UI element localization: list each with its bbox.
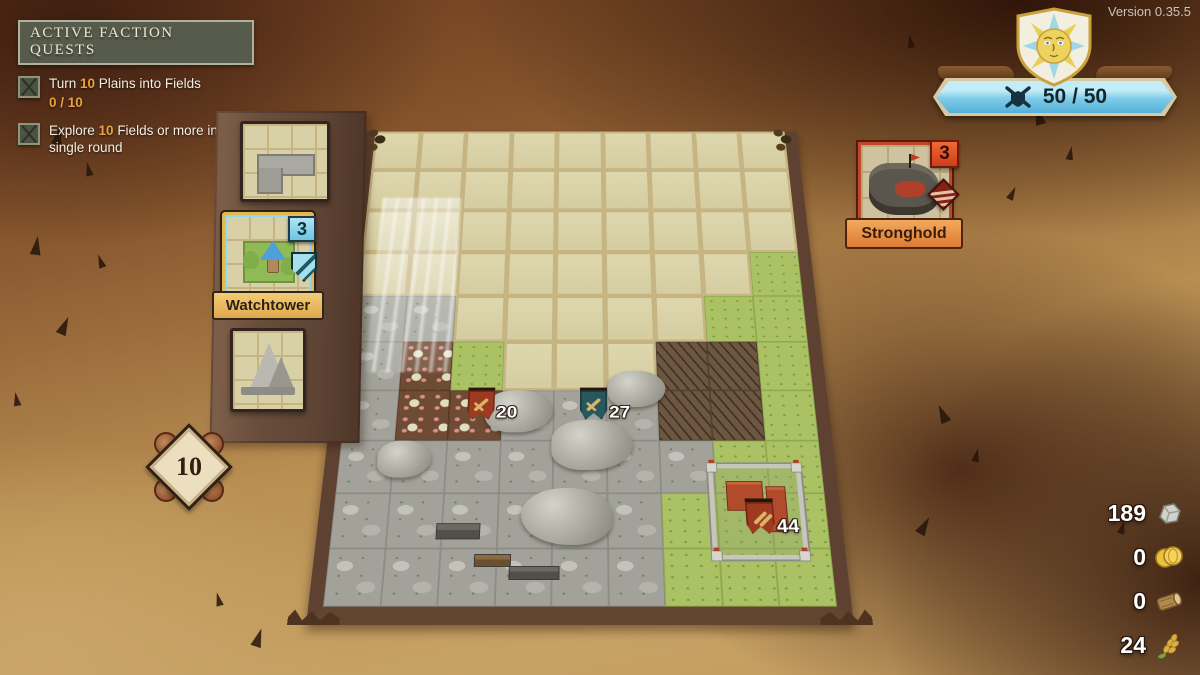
quest-progress: 0 / 10	[49, 95, 201, 112]
board-tile-unexplored-plain[interactable]	[555, 252, 604, 296]
quest-checkbox-icon	[18, 123, 40, 145]
board-tile-unexplored-plain[interactable]	[603, 170, 651, 210]
board-tile-grass[interactable]	[761, 390, 818, 440]
coins-icon	[1153, 542, 1184, 573]
mountain-base	[241, 387, 295, 395]
board-tile-rock[interactable]	[499, 440, 554, 493]
board-tile-unexplored-plain[interactable]	[605, 296, 656, 342]
stronghold-label: Stronghold	[845, 218, 963, 249]
watchtower-roof	[260, 241, 286, 260]
board-tile-unexplored-plain[interactable]	[414, 170, 464, 210]
crossed-swords-shield-icon	[1003, 85, 1033, 109]
stronghold-art	[869, 163, 939, 215]
board-tile-grass[interactable]	[757, 342, 813, 390]
board-tile-grass[interactable]	[713, 440, 771, 493]
board-tile-unexplored-plain[interactable]	[357, 252, 410, 296]
board-tile-castle-grass[interactable]	[719, 548, 780, 606]
board-tile-rock[interactable]	[496, 493, 552, 548]
board-tile-unexplored-plain[interactable]	[554, 342, 606, 390]
board-tile-unexplored-plain[interactable]	[746, 210, 798, 252]
board-tile-unexplored-plain[interactable]	[604, 210, 653, 252]
board-tile-unexplored-plain[interactable]	[504, 296, 555, 342]
board-tile-unexplored-plain[interactable]	[411, 210, 462, 252]
board-tile-rock[interactable]	[607, 493, 663, 548]
resource-list: 189 0 0 24	[1108, 498, 1184, 661]
board-tile-rock[interactable]	[551, 548, 608, 606]
wood-icon	[1153, 586, 1184, 617]
board-tile-rock[interactable]	[336, 440, 395, 493]
board-tile-mushroom-dirt[interactable]	[399, 342, 454, 390]
board-tile-village-rock[interactable]	[380, 548, 441, 606]
board-tile-badlands[interactable]	[658, 390, 713, 440]
board-tile-unexplored-plain[interactable]	[502, 342, 554, 390]
board-tile-unexplored-plain[interactable]	[653, 252, 704, 296]
board-tile-grass[interactable]	[451, 342, 505, 390]
wheat-value: 24	[1120, 632, 1146, 659]
tree-decoration	[1005, 185, 1019, 202]
board-tile-unexplored-plain[interactable]	[555, 296, 606, 342]
round-counter: 10	[146, 424, 232, 510]
quest-text-part: Turn	[49, 76, 80, 91]
teal-army-flag-banner	[580, 388, 607, 420]
stronghold-army-flag-strength: 44	[776, 516, 800, 538]
board-tile-rock[interactable]	[494, 548, 552, 606]
stronghold-army-flag-banner	[744, 498, 775, 534]
frame-carving	[287, 609, 341, 625]
board-tile-unexplored-plain[interactable]	[367, 170, 418, 210]
resource-row-coins: 0	[1133, 542, 1184, 573]
tree-decoration	[29, 235, 45, 256]
board-tile-unexplored-plain[interactable]	[654, 296, 706, 342]
board-tile-unexplored-plain[interactable]	[506, 252, 556, 296]
quest-panel-title: ACTIVE FACTION QUESTS	[18, 20, 254, 65]
board-tile-rock[interactable]	[329, 493, 389, 548]
tree-decoration	[94, 253, 107, 269]
round-counter-value: 10	[176, 452, 202, 482]
stronghold-flag	[911, 154, 920, 161]
rail-leaves-decoration	[772, 129, 795, 155]
board-tile-grass[interactable]	[766, 440, 825, 493]
wood-value: 0	[1133, 588, 1146, 615]
board-tile-unexplored-plain[interactable]	[462, 170, 511, 210]
board-tile-rock[interactable]	[660, 440, 716, 493]
board-tile-unexplored-plain[interactable]	[603, 132, 650, 171]
coins-value: 0	[1133, 544, 1146, 571]
board-tile-grass[interactable]	[661, 493, 719, 548]
board-tile-unexplored-plain[interactable]	[701, 252, 753, 296]
resource-row-stone: 189	[1108, 498, 1184, 529]
red-army-flag-strength: 20	[496, 404, 518, 423]
red-army-flag-banner	[467, 388, 496, 420]
stone-icon	[1153, 498, 1184, 529]
tree-decoration	[83, 161, 95, 177]
tree-decoration	[249, 626, 267, 648]
board-tile-rock[interactable]	[552, 493, 608, 548]
board-tile-unexplored-plain[interactable]	[604, 252, 654, 296]
rock-ridge-shape	[257, 168, 283, 194]
version-label: Version 0.35.5	[1108, 4, 1191, 19]
red-army-flag[interactable]: 20	[466, 388, 531, 427]
board-tile-unexplored-plain[interactable]	[459, 210, 509, 252]
teal-army-flag-strength: 27	[609, 404, 631, 423]
mountain-shape	[267, 357, 295, 391]
board-tile-unexplored-plain[interactable]	[456, 252, 507, 296]
mountain-tile-card[interactable]	[230, 328, 306, 412]
board-tile-mushroom-dirt[interactable]	[394, 390, 450, 440]
quest-text-part: Explore	[49, 123, 99, 138]
quest-item[interactable]: Turn 10 Plains into Fields 0 / 10	[18, 76, 254, 112]
tree-decoration	[914, 514, 935, 537]
quest-checkbox-icon	[18, 76, 40, 98]
board-tile-unexplored-plain[interactable]	[696, 170, 746, 210]
board-tile-unexplored-plain[interactable]	[556, 170, 603, 210]
teal-army-flag[interactable]: 27	[580, 388, 644, 427]
board-tile-grass[interactable]	[749, 252, 802, 296]
stronghold-count-badge: 3	[930, 140, 959, 168]
board-tile-unexplored-plain[interactable]	[464, 132, 512, 171]
resource-row-wood: 0	[1133, 586, 1184, 617]
board-tile-unexplored-plain[interactable]	[694, 132, 743, 171]
game-board: 202744	[306, 132, 854, 625]
board-tile-unexplored-plain[interactable]	[362, 210, 414, 252]
board-tile-unexplored-plain[interactable]	[418, 132, 467, 171]
sun-crest-icon	[1012, 7, 1096, 87]
board-tile-rock[interactable]	[444, 440, 500, 493]
board-tile-rock[interactable]	[323, 548, 385, 606]
game-screen: 202744 ACTIVE FACTION QUESTS Turn 10 Pla…	[0, 0, 1200, 675]
board-tile-grass[interactable]	[704, 296, 757, 342]
quest-text: Turn 10 Plains into Fields 0 / 10	[49, 76, 201, 112]
tree-decoration	[905, 33, 916, 48]
board-tile-rock[interactable]	[390, 440, 448, 493]
tree-decoration	[55, 314, 75, 337]
army-capacity-value: 50 / 50	[1043, 85, 1107, 109]
board-tile-rock[interactable]	[608, 548, 666, 606]
quest-text-part: Plains into Fields	[95, 76, 201, 91]
watchtower-tile-art	[243, 241, 295, 283]
discovered-tile-card[interactable]	[240, 121, 330, 202]
board-tile-unexplored-plain[interactable]	[507, 210, 556, 252]
board-tile-rock[interactable]	[385, 493, 444, 548]
board-tile-grass[interactable]	[775, 548, 837, 606]
quest-number: 10	[80, 76, 95, 91]
board-tile-rock[interactable]	[607, 440, 662, 493]
board-tile-unexplored-plain[interactable]	[742, 170, 793, 210]
board-tile-grass[interactable]	[664, 548, 723, 606]
board-tile-unexplored-plain[interactable]	[509, 170, 557, 210]
board-tile-rock[interactable]	[403, 296, 456, 342]
resource-row-wheat: 24	[1120, 630, 1184, 661]
board-tile-unexplored-plain[interactable]	[453, 296, 505, 342]
tree-decoration	[971, 447, 983, 463]
board-tile-unexplored-plain[interactable]	[407, 252, 459, 296]
rail-leaves-decoration	[365, 129, 388, 155]
board-tile-unexplored-plain[interactable]	[510, 132, 557, 171]
board-tile-unexplored-plain[interactable]	[605, 342, 657, 390]
stronghold-army-flag[interactable]: 44	[744, 498, 815, 541]
board-tile-badlands[interactable]	[707, 342, 762, 390]
board-tile-grass[interactable]	[753, 296, 808, 342]
watchtower-count-badge: 3	[288, 216, 316, 242]
tree-decoration	[1065, 145, 1076, 160]
board-tile-unexplored-plain[interactable]	[648, 132, 696, 171]
board-tile-rock[interactable]	[441, 493, 499, 548]
board-tile-unexplored-plain[interactable]	[557, 132, 603, 171]
tree-decoration	[933, 402, 953, 425]
quest-number: 10	[99, 123, 114, 138]
wheat-icon	[1153, 630, 1184, 661]
board-tile-unexplored-plain[interactable]	[650, 170, 699, 210]
tree-decoration	[11, 391, 22, 406]
board-tile-rock[interactable]	[553, 440, 607, 493]
tree-decoration	[212, 591, 224, 607]
stone-value: 189	[1108, 500, 1146, 527]
watchtower-label: Watchtower	[212, 291, 324, 320]
board-tile-badlands[interactable]	[656, 342, 710, 390]
board-tile-village-rock[interactable]	[437, 548, 496, 606]
board-tile-unexplored-plain[interactable]	[698, 210, 749, 252]
frame-carving	[819, 609, 873, 625]
board-tile-badlands[interactable]	[709, 390, 765, 440]
board-tile-unexplored-plain[interactable]	[651, 210, 701, 252]
board-tile-unexplored-plain[interactable]	[556, 210, 604, 252]
